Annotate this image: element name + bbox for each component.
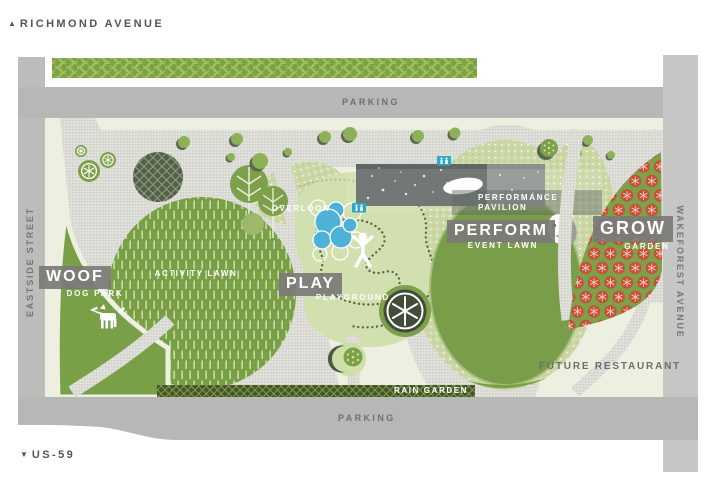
wakeforest-avenue-road-south (663, 440, 698, 472)
park-master-plan-map: ▲RICHMOND AVENUE ▼US-59 EASTSIDE STREET … (0, 0, 704, 500)
activity-lawn-label: ACTIVITY LAWN (155, 269, 238, 278)
grow-zone-label: GROW (593, 216, 673, 242)
map-graphic (0, 0, 704, 500)
overlook-label: OVERLOOK (272, 204, 331, 213)
garden-label: GARDEN (624, 242, 669, 251)
perform-zone-label: PERFORM (447, 220, 555, 243)
performance-pavilion-label: PERFORMANCE PAVILION (478, 193, 558, 213)
future-restaurant-label: FUTURE RESTAURANT (539, 361, 681, 372)
dog-park-label: DOG PARK (67, 289, 124, 298)
woof-zone-label: WOOF (39, 266, 111, 289)
eastside-street-label: EASTSIDE STREET (25, 207, 35, 317)
wakeforest-avenue-label: WAKEFOREST AVENUE (675, 205, 685, 338)
playground-label: PLAYGROUND (316, 293, 390, 302)
parking-bottom-label: PARKING (338, 413, 396, 423)
dome-tree (133, 152, 183, 202)
restroom-icon (437, 156, 451, 166)
up-arrow-icon: ▲ (8, 19, 16, 28)
richmond-avenue-label: ▲RICHMOND AVENUE (8, 18, 164, 30)
parking-top-label: PARKING (342, 97, 400, 107)
restroom-icon (352, 203, 366, 213)
us59-label: ▼US-59 (20, 449, 75, 461)
event-lawn-label: EVENT LAWN (468, 241, 538, 250)
down-arrow-icon: ▼ (20, 450, 28, 459)
parking-top-band (18, 87, 663, 118)
rain-garden-label: RAIN GARDEN (394, 386, 468, 395)
street-hedge-strip (52, 58, 477, 78)
